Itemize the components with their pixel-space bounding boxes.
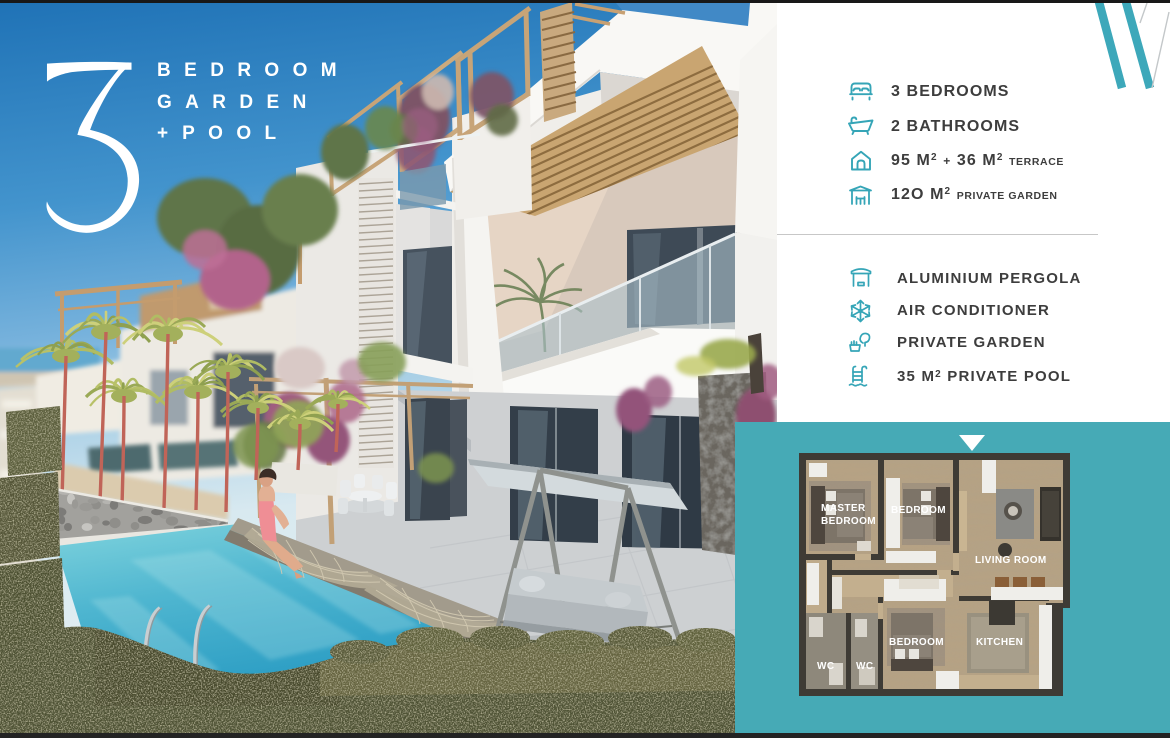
svg-text:LIVING ROOM: LIVING ROOM xyxy=(975,555,1047,566)
svg-text:WC: WC xyxy=(856,661,873,672)
svg-text:BEDROOM: BEDROOM xyxy=(821,516,876,527)
svg-text:MASTER: MASTER xyxy=(821,503,866,514)
svg-text:KITCHEN: KITCHEN xyxy=(976,637,1023,648)
svg-text:BEDROOM: BEDROOM xyxy=(889,637,944,648)
svg-text:WC: WC xyxy=(817,661,834,672)
svg-text:BEDROOM: BEDROOM xyxy=(891,505,946,516)
